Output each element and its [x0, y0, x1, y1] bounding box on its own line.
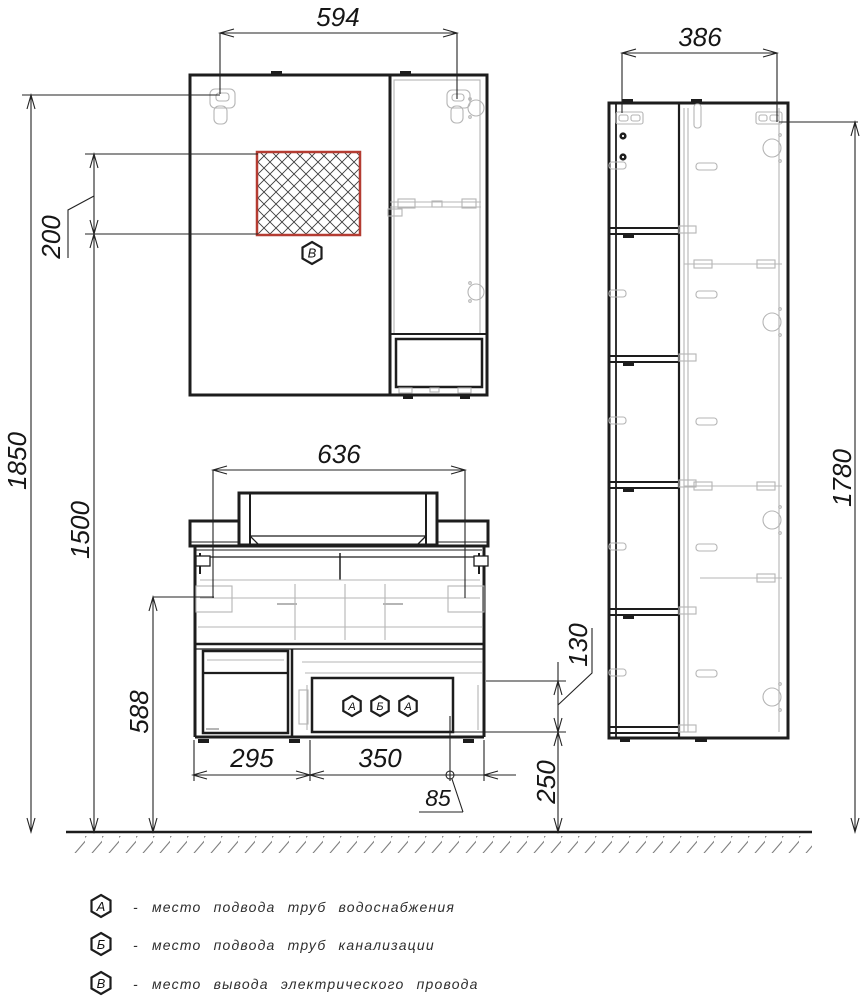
- dimension-label-200: 200: [36, 215, 66, 260]
- drawer-internals: [195, 553, 488, 640]
- dimension-label-1780: 1780: [827, 449, 857, 507]
- vanity-view: А Б А: [190, 493, 488, 743]
- marker-electric-icon: В: [303, 242, 322, 264]
- dimension-588: 588: [124, 597, 214, 832]
- dimension-label-636: 636: [317, 439, 361, 469]
- dimension-label-295: 295: [229, 743, 274, 773]
- dimension-label-386: 386: [678, 22, 722, 52]
- tall-cabinet-view: [609, 99, 788, 742]
- open-shelf-box: [396, 339, 482, 387]
- marker-sewage-icon: Б: [371, 696, 388, 716]
- legend: А - место подвода труб водоснабжения Б -…: [92, 895, 479, 994]
- dimension-label-250: 250: [531, 760, 561, 805]
- marker-water-left-letter: А: [347, 701, 355, 713]
- dimension-label-130: 130: [563, 623, 593, 667]
- legend-item-electric: В - место вывода электрического провода: [92, 972, 479, 994]
- marker-water-icon: А: [399, 696, 416, 716]
- marker-water-right-letter: А: [403, 701, 411, 713]
- legend-water-symbol: А: [96, 899, 106, 914]
- marker-sewage-letter: Б: [376, 701, 383, 713]
- legend-sewage-symbol: Б: [97, 937, 106, 952]
- legend-item-water: А - место подвода труб водоснабжения: [92, 895, 456, 917]
- legend-electric-symbol: В: [97, 976, 106, 991]
- washbasin: [239, 493, 437, 545]
- floor-line: [66, 832, 812, 853]
- mirror-cabinet-view: В: [190, 71, 487, 399]
- marker-electric-letter: В: [308, 246, 317, 261]
- dimension-label-1500: 1500: [65, 501, 95, 559]
- dimension-label-594: 594: [316, 2, 359, 32]
- legend-dash: -: [133, 976, 139, 992]
- dimension-label-588: 588: [124, 690, 154, 734]
- legend-item-sewage: Б - место подвода труб канализации: [92, 933, 435, 955]
- lower-door: [203, 651, 288, 733]
- service-panel: А Б А: [299, 662, 482, 732]
- dimension-1780: 1780: [779, 122, 859, 832]
- dimension-1850: 1850: [2, 95, 220, 832]
- mounting-tick: [271, 71, 282, 75]
- legend-electric-label: место вывода электрического провода: [152, 976, 479, 992]
- legend-water-label: место подвода труб водоснабжения: [152, 899, 455, 915]
- furniture-dimension-drawing: В: [0, 0, 865, 1000]
- dimension-label-350: 350: [358, 743, 402, 773]
- legend-dash: -: [133, 899, 139, 915]
- dimension-label-1850: 1850: [2, 432, 32, 490]
- legend-dash: -: [133, 937, 139, 953]
- marker-water-icon: А: [343, 696, 360, 716]
- dimension-130-250: 130 250: [454, 623, 593, 832]
- mounting-tick: [400, 71, 411, 75]
- electric-outlet-zone: [257, 152, 360, 235]
- technical-drawing-page: В: [0, 0, 865, 1000]
- dimension-label-85: 85: [425, 785, 451, 811]
- legend-sewage-label: место подвода труб канализации: [152, 937, 435, 953]
